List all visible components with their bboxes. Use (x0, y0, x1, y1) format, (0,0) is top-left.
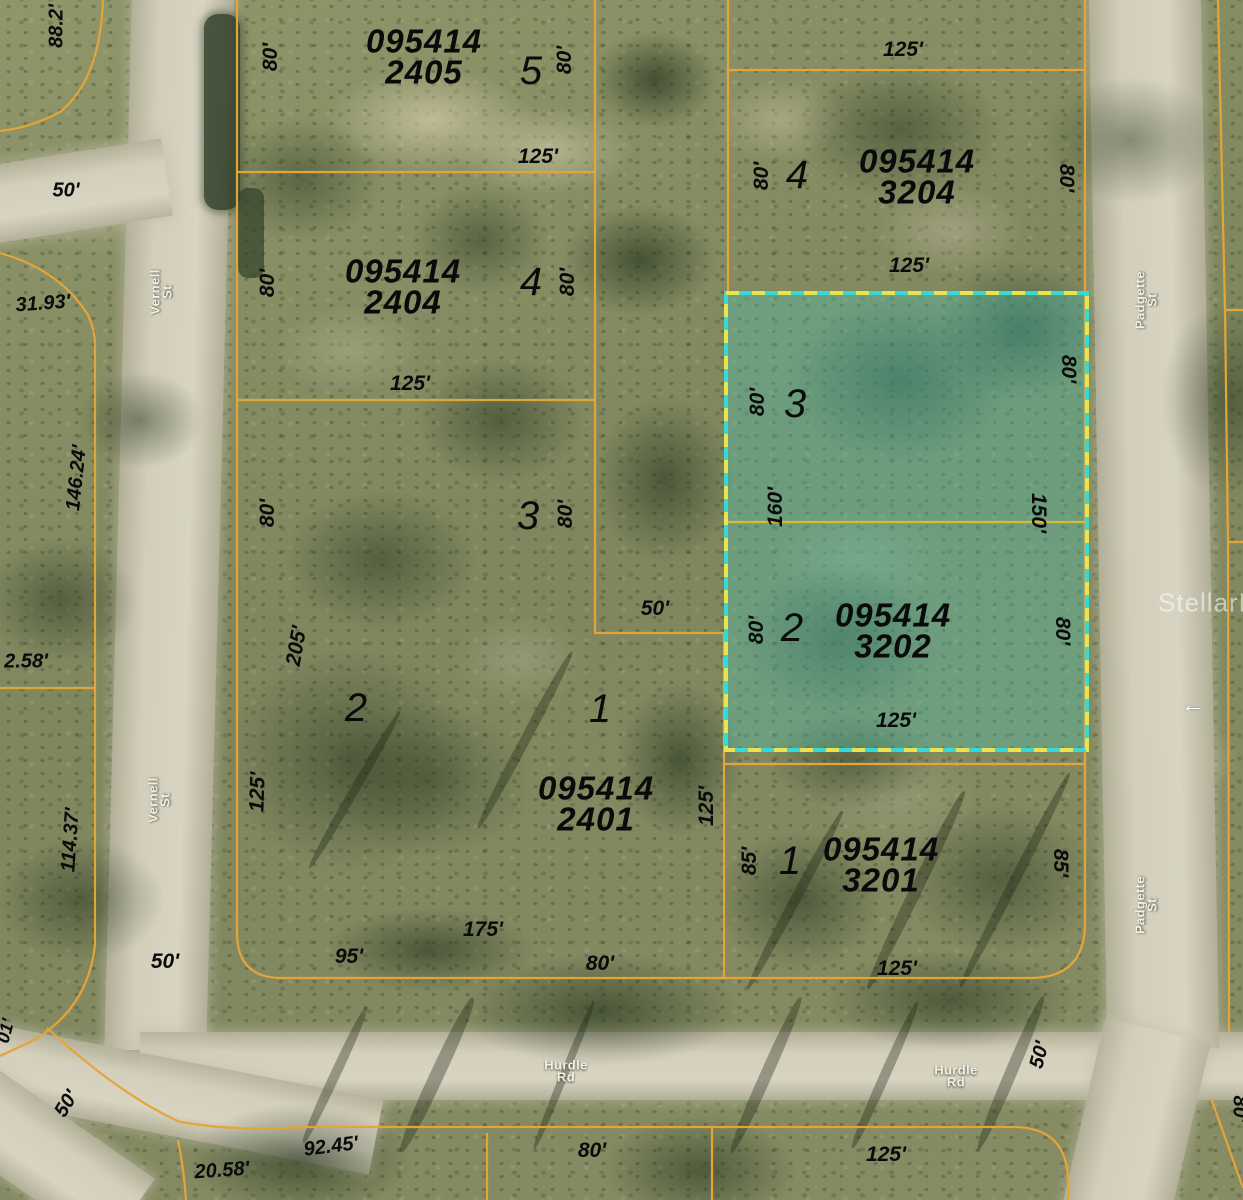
boundary-west-top-corner (0, 0, 103, 131)
boundary-west-parcel (0, 253, 95, 1056)
boundary-leftblock-east (595, 0, 724, 978)
boundary-east-of-padgette (1218, 0, 1243, 1032)
boundary-strip-leg (178, 1140, 186, 1200)
boundary-southeast-diagonal (1211, 1098, 1243, 1188)
boundary-strip-south (47, 1028, 1068, 1200)
parcel-boundaries-overlay (0, 0, 1243, 1200)
aerial-parcel-map: 095414 2405095414 2404095414 3204095414 … (0, 0, 1243, 1200)
